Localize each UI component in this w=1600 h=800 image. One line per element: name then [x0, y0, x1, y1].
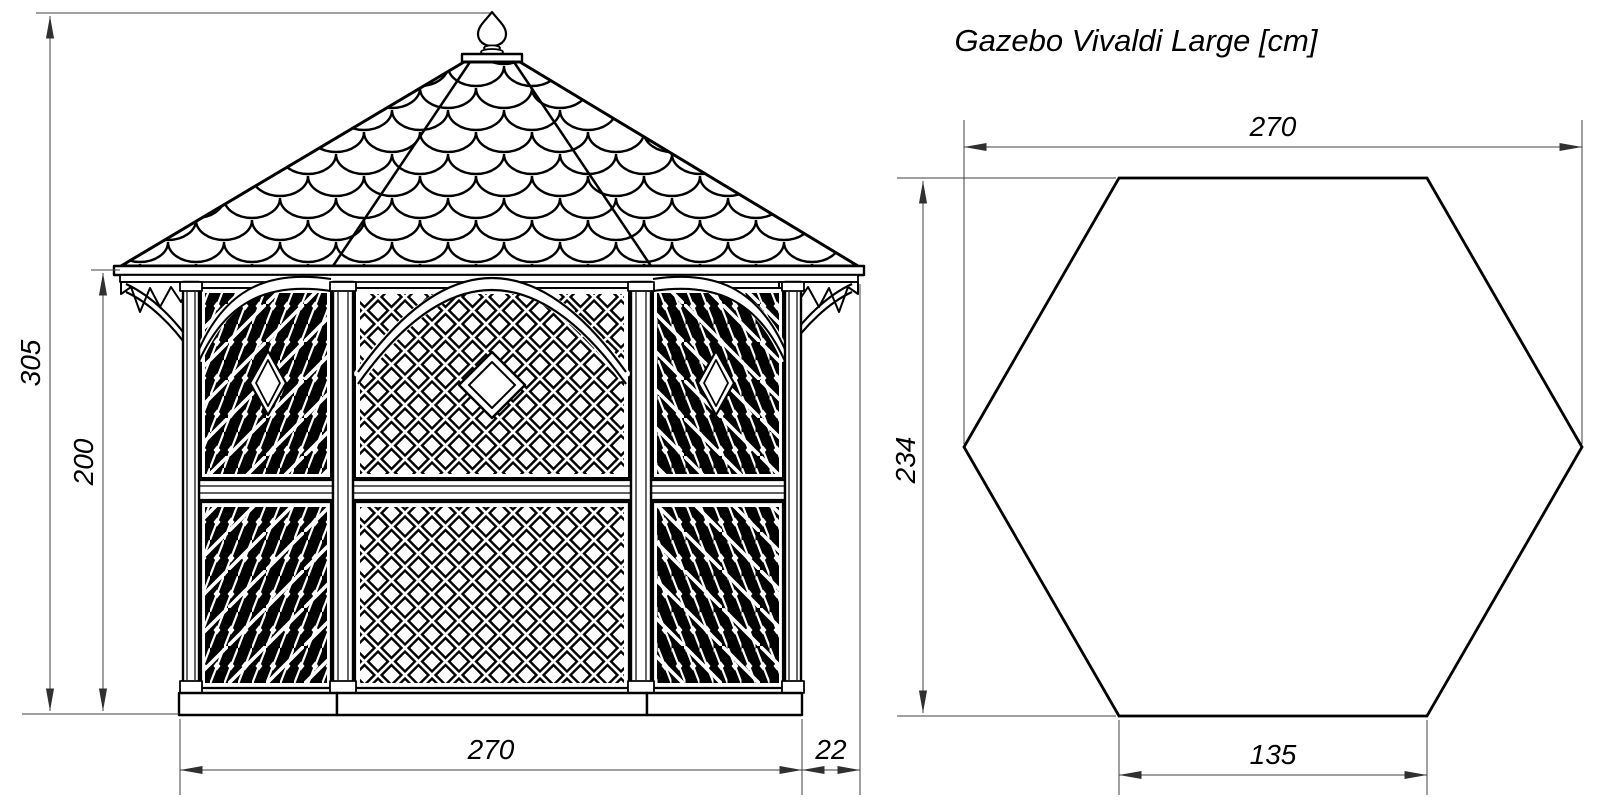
drawing-title: Gazebo Vivaldi Large [cm] — [954, 23, 1318, 58]
dim-base-width-label: 270 — [467, 734, 515, 765]
dim-plan-depth-label: 234 — [890, 437, 921, 485]
lower-panel-right — [653, 502, 783, 688]
dim-total-height-label: 305 — [15, 339, 46, 386]
dim-wall-height-label: 200 — [68, 438, 99, 486]
dim-plan-width-label: 270 — [1249, 111, 1297, 142]
mid-rails — [199, 480, 785, 500]
dim-overhang-label: 22 — [814, 734, 847, 765]
lower-panel-center — [355, 502, 629, 688]
dim-plan-side-label: 135 — [1250, 739, 1297, 770]
lower-panel-left — [201, 502, 331, 688]
technical-drawing: 305 200 270 22 270 234 135 — [0, 0, 1600, 800]
drawing-canvas: 305 200 270 22 270 234 135 — [0, 0, 1600, 800]
plinth — [179, 693, 802, 715]
